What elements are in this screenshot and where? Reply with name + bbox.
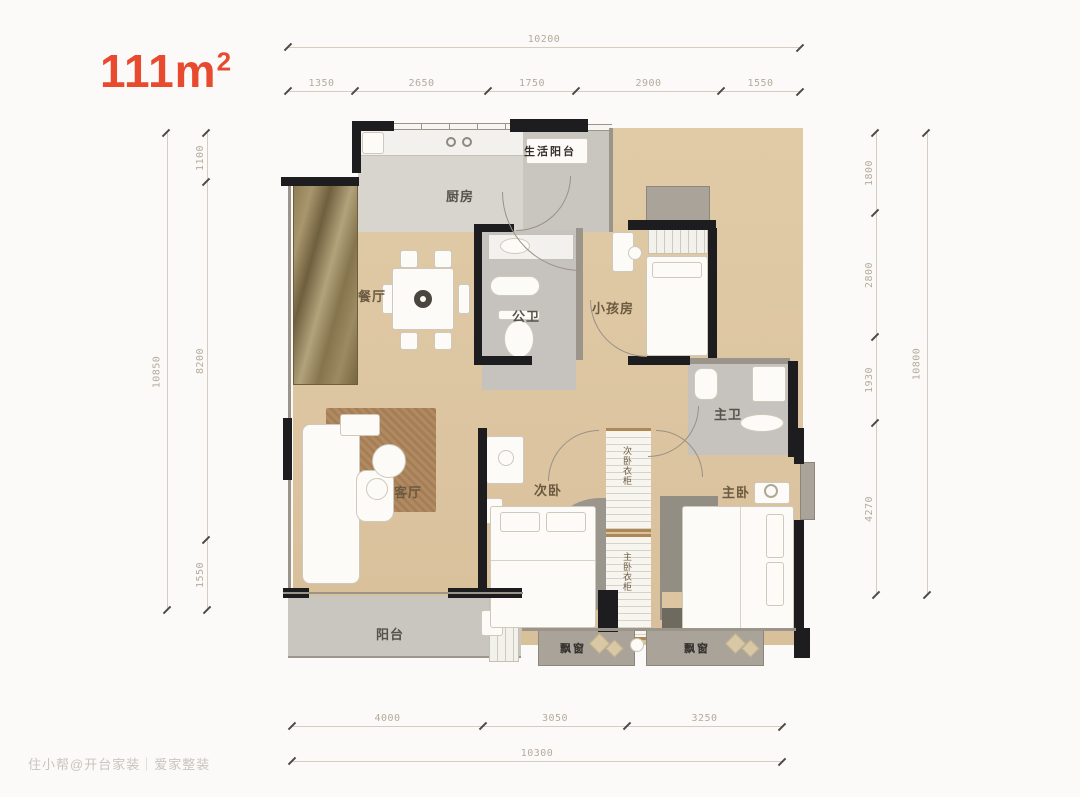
fridge-icon <box>362 132 384 154</box>
kids-pillow <box>652 262 702 278</box>
dim-value: 1100 <box>196 144 206 170</box>
wall-segment <box>609 128 613 232</box>
dim-segment: 3050 <box>483 709 627 727</box>
wall-segment <box>690 358 790 364</box>
stove-burner-icon <box>462 137 472 147</box>
sofa <box>302 424 360 584</box>
dining-chair <box>458 284 470 314</box>
dim-right-total: 10800 <box>910 133 928 595</box>
dim-segment: 10850 <box>150 133 168 610</box>
feature-wall-marble <box>293 185 358 385</box>
dim-value: 4270 <box>865 496 875 522</box>
wall-segment <box>794 520 804 630</box>
wall-segment <box>628 220 716 230</box>
kids-outer-sill <box>646 186 710 224</box>
dim-segment: 3250 <box>627 709 782 727</box>
dim-value: 2650 <box>408 79 434 89</box>
wall-segment <box>708 228 717 361</box>
dim-segment: 1800 <box>859 133 877 213</box>
dining-chair <box>400 250 418 268</box>
dim-segment: 1100 <box>190 133 208 182</box>
area-value: 111m <box>100 45 217 97</box>
dim-segment: 1930 <box>859 337 877 423</box>
bay-table <box>630 638 644 652</box>
bathtub-icon <box>490 276 540 296</box>
watermark-text: 住小帮@开台家装｜爱家整装 <box>28 754 210 773</box>
dim-segment: 2800 <box>859 213 877 337</box>
plant-icon <box>764 484 778 498</box>
toilet-icon <box>694 368 718 400</box>
dim-value: 1550 <box>196 562 206 588</box>
window <box>394 123 510 130</box>
wall-segment <box>283 592 523 594</box>
dim-value: 2800 <box>865 262 875 288</box>
side-table <box>366 478 388 500</box>
room-label-second-bedroom: 次卧 <box>534 480 562 499</box>
wall-segment <box>288 186 291 596</box>
room-label-public-bath: 公卫 <box>512 306 540 325</box>
kids-closet <box>648 228 708 254</box>
dim-value: 1750 <box>519 79 545 89</box>
dining-chair <box>434 250 452 268</box>
side-table <box>372 444 406 478</box>
dim-segment: 2900 <box>576 74 721 92</box>
room-label-dining: 餐厅 <box>358 286 386 305</box>
dining-chair <box>434 332 452 350</box>
dim-segment: 1550 <box>721 74 800 92</box>
dim-top-segments: 1350 2650 1750 2900 1550 <box>288 74 800 92</box>
wall-segment <box>474 230 482 358</box>
dim-left-segments: 1100 8200 1550 <box>190 133 208 610</box>
wall-segment <box>478 428 487 592</box>
dim-value: 3050 <box>542 714 568 724</box>
dim-right-segments: 1800 2800 1930 4270 <box>859 133 877 595</box>
bed-pillow <box>766 562 784 606</box>
dim-segment: 1750 <box>488 74 576 92</box>
dim-value: 1350 <box>308 79 334 89</box>
area-title: 111m2 <box>100 44 232 98</box>
wall-segment <box>628 356 690 365</box>
wall-segment <box>522 628 796 631</box>
dim-value: 10850 <box>153 355 163 388</box>
kids-chair <box>628 246 642 260</box>
area-sup: 2 <box>217 47 232 77</box>
dim-segment: 8200 <box>190 182 208 540</box>
dim-segment: 1550 <box>190 540 208 610</box>
dim-segment: 10200 <box>288 30 800 48</box>
dim-bottom-total: 10300 <box>292 744 782 762</box>
second-wardrobe-label: 次卧衣柜 <box>620 446 633 486</box>
dining-chair <box>400 332 418 350</box>
dim-segment: 4000 <box>292 709 483 727</box>
tv-console-notch <box>662 592 682 608</box>
dim-top-total: 10200 <box>288 30 800 48</box>
blanket-fold-line <box>491 560 595 561</box>
dim-segment: 10300 <box>292 744 782 762</box>
dim-segment: 4270 <box>859 423 877 595</box>
dining-centerpiece-icon <box>414 290 432 308</box>
wall-segment <box>510 119 588 132</box>
dim-bottom-segments: 4000 3050 3250 <box>292 709 782 727</box>
room-label-master-bath: 主卫 <box>714 404 742 423</box>
bath-sink-icon <box>740 414 784 432</box>
right-window-sill <box>800 462 815 520</box>
bed-pillow <box>766 514 784 558</box>
room-label-bay-window-left: 飘窗 <box>560 640 586 656</box>
bed-pillow <box>546 512 586 532</box>
dim-segment: 10800 <box>910 133 928 595</box>
floorplan-canvas: 111m2 10200 1350 2650 1750 2900 1550 400… <box>0 0 1080 797</box>
dim-segment: 2650 <box>355 74 488 92</box>
wall-segment <box>794 628 810 658</box>
stove-burner-icon <box>446 137 456 147</box>
room-label-bay-window-right: 飘窗 <box>684 640 710 656</box>
dim-value: 1930 <box>865 367 875 393</box>
dim-value: 2900 <box>635 79 661 89</box>
toilet-icon <box>504 320 534 358</box>
desk-chair <box>498 450 514 466</box>
dim-segment: 1350 <box>288 74 355 92</box>
dim-value: 4000 <box>374 714 400 724</box>
bed-pillow <box>500 512 540 532</box>
room-label-balcony: 阳台 <box>376 624 404 643</box>
dim-value: 1550 <box>747 79 773 89</box>
dim-value: 8200 <box>196 348 206 374</box>
room-label-master-bedroom: 主卧 <box>722 482 750 501</box>
dim-value: 1800 <box>865 160 875 186</box>
dim-left-total: 10850 <box>150 133 168 610</box>
room-label-kids-room: 小孩房 <box>592 298 634 317</box>
dim-value: 10300 <box>521 749 554 759</box>
wall-segment <box>794 428 804 464</box>
room-label-living: 客厅 <box>394 482 422 501</box>
wall-segment <box>598 590 618 632</box>
shower-icon <box>752 366 786 402</box>
wall-segment <box>352 121 361 173</box>
wall-segment <box>283 418 292 480</box>
room-label-service-balcony: 生活阳台 <box>524 143 576 159</box>
master-wardrobe-label: 主卧衣柜 <box>620 552 633 592</box>
coffee-table <box>340 414 380 436</box>
dim-value: 10200 <box>528 35 561 45</box>
blanket-fold-line <box>740 507 741 629</box>
wall-segment <box>281 177 359 186</box>
dim-value: 10800 <box>913 348 923 381</box>
room-label-kitchen: 厨房 <box>446 186 474 205</box>
wall-segment <box>474 356 532 365</box>
dim-value: 3250 <box>691 714 717 724</box>
